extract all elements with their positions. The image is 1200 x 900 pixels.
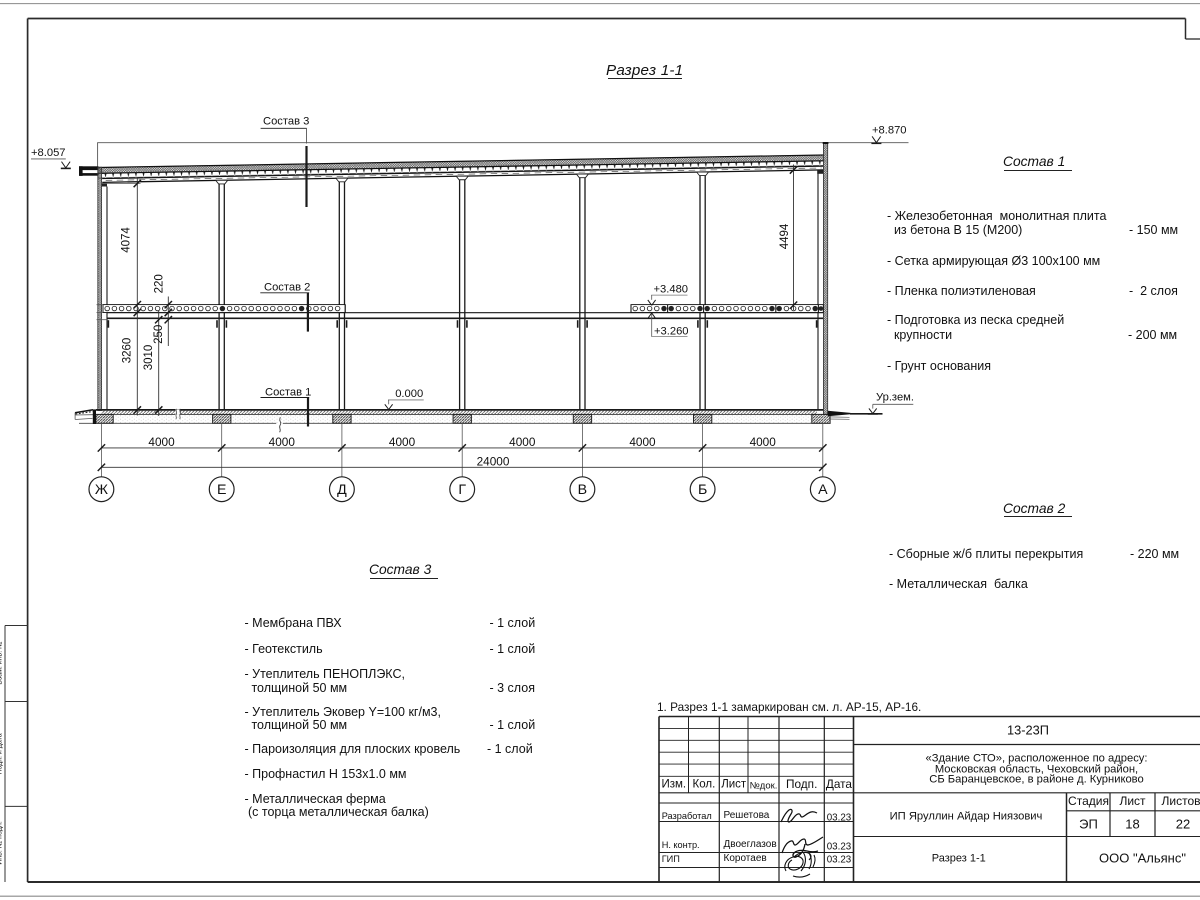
svg-text:Состав 3: Состав 3 [263, 116, 309, 128]
svg-text:250: 250 [153, 325, 165, 344]
svg-text:В: В [578, 482, 587, 498]
svg-text:Состав 2: Состав 2 [264, 281, 310, 293]
svg-text:4000: 4000 [269, 435, 296, 449]
svg-text:+8.057: +8.057 [31, 147, 66, 159]
svg-text:4000: 4000 [629, 435, 656, 449]
svg-text:4000: 4000 [750, 435, 777, 449]
svg-text:4000: 4000 [389, 435, 416, 449]
svg-text:Е: Е [217, 482, 226, 498]
svg-text:Б: Б [698, 482, 707, 498]
svg-text:Д: Д [337, 482, 347, 498]
svg-text:+8.870: +8.870 [872, 124, 907, 136]
svg-text:3010: 3010 [143, 345, 155, 371]
svg-text:220: 220 [153, 274, 165, 293]
svg-text:Ур.зем.: Ур.зем. [876, 392, 914, 404]
svg-text:Ж: Ж [95, 482, 108, 498]
svg-text:Состав 1: Состав 1 [265, 387, 311, 399]
svg-text:4074: 4074 [120, 227, 132, 253]
svg-text:+3.260: +3.260 [654, 326, 689, 338]
svg-text:4494: 4494 [779, 223, 791, 249]
svg-text:3260: 3260 [121, 338, 133, 364]
svg-text:0.000: 0.000 [395, 388, 423, 400]
svg-text:4000: 4000 [148, 435, 175, 449]
svg-text:4000: 4000 [509, 435, 536, 449]
svg-text:Г: Г [458, 482, 466, 498]
svg-text:24000: 24000 [477, 454, 510, 468]
svg-text:+3.480: +3.480 [654, 284, 689, 296]
svg-text:А: А [818, 482, 828, 498]
svg-text:Подп. и дата: Подп. и дата [0, 733, 4, 774]
svg-text:Взам. инв. №: Взам. инв. № [0, 641, 4, 684]
svg-text:Инв. № подл.: Инв. № подл. [0, 821, 4, 865]
